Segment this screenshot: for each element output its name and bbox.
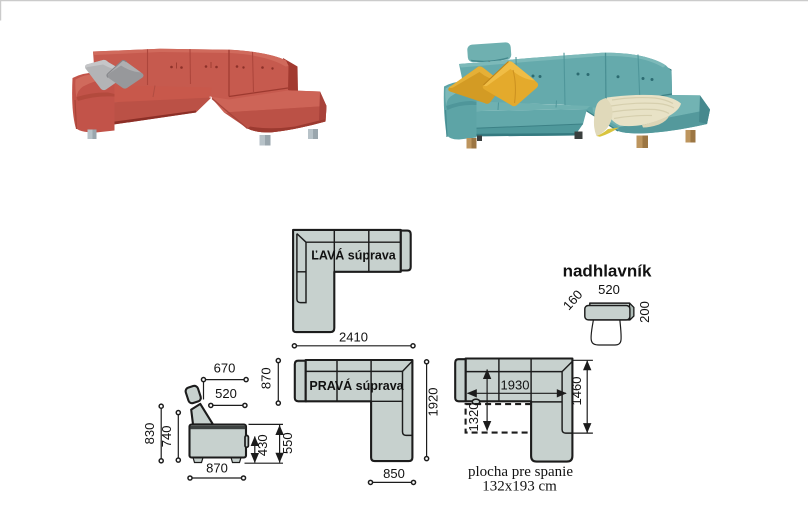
svg-text:1930: 1930 (501, 378, 530, 393)
svg-text:1920: 1920 (426, 388, 441, 417)
svg-text:1320: 1320 (466, 403, 481, 432)
svg-text:430: 430 (255, 434, 270, 456)
svg-text:132x193 cm: 132x193 cm (482, 479, 557, 495)
svg-text:850: 850 (383, 466, 405, 481)
svg-text:2410: 2410 (339, 330, 368, 345)
svg-text:670: 670 (214, 361, 236, 376)
svg-text:ĽAVÁ súprava: ĽAVÁ súprava (311, 247, 397, 262)
svg-text:520: 520 (215, 386, 237, 401)
svg-text:nadhlavník: nadhlavník (563, 262, 652, 281)
svg-text:200: 200 (637, 301, 652, 323)
svg-text:PRAVÁ súprava: PRAVÁ súprava (309, 378, 404, 393)
svg-text:740: 740 (159, 426, 174, 448)
svg-text:160: 160 (560, 287, 586, 313)
svg-text:520: 520 (598, 282, 620, 297)
svg-text:550: 550 (280, 432, 295, 454)
svg-text:1460: 1460 (569, 377, 584, 406)
svg-text:870: 870 (259, 367, 274, 389)
svg-text:830: 830 (142, 423, 157, 445)
svg-text:870: 870 (206, 461, 228, 476)
